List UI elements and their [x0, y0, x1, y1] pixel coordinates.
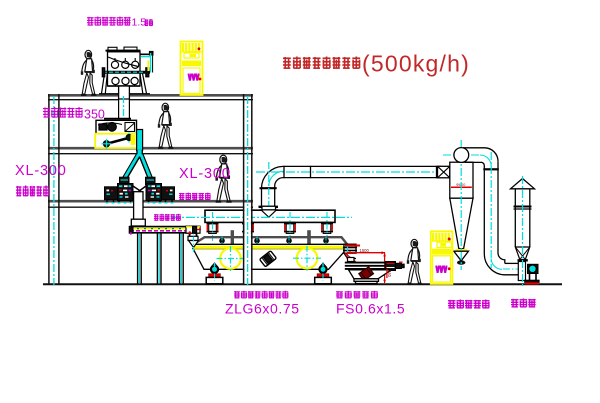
svg-text:(500kg/h): (500kg/h) [362, 51, 470, 77]
svg-text:1.5: 1.5 [132, 17, 147, 29]
svg-text:350: 350 [84, 108, 105, 122]
svg-text:ZLG6x0.75: ZLG6x0.75 [225, 301, 300, 317]
svg-text:XL-300: XL-300 [15, 163, 67, 179]
svg-text:340: 340 [387, 270, 392, 278]
svg-text:1500: 1500 [360, 248, 370, 253]
svg-text:XL-300: XL-300 [179, 166, 231, 182]
svg-text:FS0.6x1.5: FS0.6x1.5 [336, 301, 405, 317]
